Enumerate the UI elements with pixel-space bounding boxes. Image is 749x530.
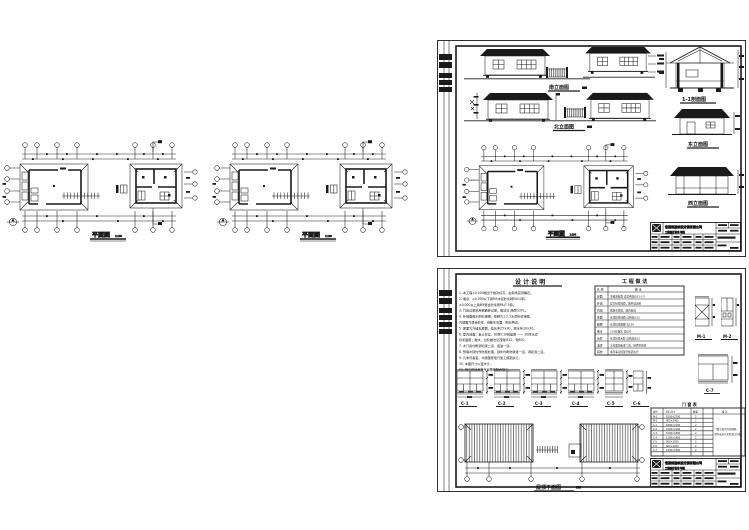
notes-title: 设 计 说 明 — [515, 278, 545, 286]
schedule-cell: 1000×2700 — [666, 415, 681, 418]
south-elevation-label: 南立面图 — [549, 84, 569, 91]
window-detail-c5 — [605, 370, 633, 397]
practice-col2: 做 法 — [635, 288, 642, 292]
sheet2-title-block — [651, 459, 741, 487]
sheet-elevations: 南立面图 北立面图 1-1剖面图 东立面图 — [438, 41, 746, 257]
roof-plan: 屋顶平面图 — [459, 424, 645, 491]
schedule-cell: C-5 — [653, 441, 658, 444]
note-line: 3. 门窗过梁采用钢筋砖过梁，做法见 西南G301。 — [459, 308, 528, 313]
schedule-header: 数量 — [693, 410, 698, 414]
practice-name: 台阶 — [597, 337, 603, 341]
sheet1-title-block — [651, 223, 741, 251]
section-label: 1-1剖面图 — [682, 96, 706, 103]
schedule-cell: M-1 — [653, 415, 658, 418]
window-detail-c6 — [633, 371, 651, 394]
binding-strip-blocks — [439, 54, 452, 92]
schedule-remark: 制作安装以实际洞口为准。 — [715, 432, 744, 436]
practice-title: 工 程 做 法 — [622, 278, 647, 285]
floor-plan-2 — [213, 140, 408, 241]
schedule-cell: 900×1500 — [666, 441, 679, 444]
practice-table: 工 程 做 法 名 称 做 法 屋面冷摊瓦屋面 详见西南J201-1-2 外墙混… — [595, 278, 684, 355]
note-line: 内墙面为混合砂浆，纸筋灰罩面，刷白两道。 — [459, 320, 521, 325]
c4-label: C-4 — [572, 401, 580, 406]
schedule-cell: 1200×1800 — [666, 436, 681, 439]
schedule-cell: C-7 — [653, 449, 658, 452]
north-elevation-label: 北立面图 — [554, 124, 574, 131]
practice-desc: 木材面调和漆二道，铁件防锈漆 — [610, 344, 647, 348]
schedule-cell: C-4 — [653, 436, 658, 439]
schedule-cell: C-2 — [653, 428, 658, 431]
practice-name: 内墙 — [597, 309, 603, 313]
south-elevation-left — [480, 49, 550, 78]
note-line: 6. 室内地面：素土夯实，80厚C10砼垫层 —— 20厚水泥 — [459, 331, 538, 336]
practice-name: 油漆 — [597, 344, 603, 348]
practice-desc: 未尽事宜按现行规范执行 — [610, 350, 639, 354]
west-elevation: 西立面图 — [668, 167, 744, 207]
schedule-remark: 门窗立面均为外视图， — [715, 427, 739, 431]
door-detail-m2 — [721, 298, 739, 326]
east-elevation: 东立面图 — [672, 109, 740, 148]
section-drawing: 1-1剖面图 — [659, 47, 744, 103]
schedule-header: 洞口尺寸 — [666, 410, 676, 414]
south-elevation-fence — [546, 67, 568, 78]
design-notes: 1. 本工程±0.000相当于绝对标高，由现场实测确定。 2. 墙身：±0.00… — [459, 290, 546, 372]
c2-label: C-2 — [498, 401, 506, 406]
schedule-cell: C-6 — [653, 445, 658, 448]
schedule-cell: 1500×2100 — [666, 428, 681, 431]
note-line: 砂浆面层；散水、台阶做法见西南J812，宽600。 — [459, 337, 527, 342]
note-line: 2. 墙身：±0.000以下用M5水泥砂浆砌MU10砖， — [459, 296, 528, 301]
plant-icon — [470, 100, 474, 110]
schedule-table: 门 窗 表 编号 洞口尺寸 数量 备 注 M-11000×27002 M-290… — [651, 401, 745, 456]
schedule-cell: C-1 — [653, 424, 658, 427]
practice-desc: 水泥砂浆台阶 详西南J812 — [610, 337, 640, 341]
schedule-cell: 600×1200 — [666, 445, 679, 448]
practice-name: 地面 — [597, 316, 603, 320]
practice-desc: C10砼散水 宽600 — [610, 330, 632, 334]
note-line: 8. 预埋木砖均作防腐处理，铁件均刷防锈漆一道，调和漆二道。 — [459, 349, 546, 354]
practice-desc: 水泥砂浆地面 详西南J312 — [610, 316, 640, 320]
cad-screenshot: 平面图 1:100 — [0, 0, 749, 530]
south-elevation-right — [585, 47, 651, 74]
east-elevation-label: 东立面图 — [688, 141, 708, 148]
practice-desc: 纸筋灰罩面，刷白两道 — [610, 309, 636, 313]
schedule-cell: C-3 — [653, 432, 658, 435]
schedule-title: 门 窗 表 — [682, 401, 697, 407]
practice-name: 散水 — [597, 330, 603, 334]
practice-name: 踢脚 — [597, 323, 603, 327]
north-elevation-right — [586, 93, 654, 121]
practice-name: 屋面 — [597, 295, 603, 299]
note-line: 4. 外墙面做水刷石墙裙，勒脚为1:2.5水泥砂浆抹面， — [459, 314, 533, 319]
cad-canvas: 平面图 1:100 — [0, 0, 749, 530]
note-line: 10. 本图尺寸以毫米计。 — [459, 361, 493, 366]
window-detail-c2 — [494, 370, 530, 398]
window-detail-c3 — [531, 370, 567, 398]
sheet-details: 设 计 说 明 1. 本工程±0.000相当于绝对标高，由现场实测确定。 2. … — [438, 269, 746, 492]
roof-fence — [536, 446, 558, 453]
c3-label: C-3 — [535, 401, 543, 406]
floor-plan-1 — [3, 140, 198, 241]
practice-desc: 水泥砂浆踢脚 高150 — [610, 323, 634, 327]
c7-label: C-7 — [706, 388, 714, 393]
schedule-header: 编号 — [653, 410, 658, 414]
m1-label: M-1 — [697, 334, 706, 339]
west-elevation-label: 西立面图 — [688, 200, 708, 207]
roof-plan-label: 屋顶平面图 — [536, 484, 561, 491]
north-elevation-fence — [564, 107, 586, 118]
practice-col1: 名 称 — [597, 288, 604, 292]
c5-label: C-5 — [607, 401, 615, 406]
c1-label: C-1 — [461, 401, 469, 406]
schedule-cell: 900×2400 — [666, 420, 679, 423]
practice-desc: 冷摊瓦屋面 详见西南J201-1-2 — [610, 295, 645, 299]
practice-name: 其他 — [597, 350, 603, 354]
note-line: 7. 木门窗均刷调和漆二道，底油一道。 — [459, 343, 512, 348]
sheet1-floor-plan — [462, 143, 647, 239]
schedule-cell: 1500×1500 — [666, 449, 681, 452]
note-line: 9. 凡未尽事宜，均按国家现行施工规范执行。 — [459, 355, 522, 360]
note-line: 1. 本工程±0.000相当于绝对标高，由现场实测确定。 — [459, 290, 533, 295]
window-detail-c4 — [568, 370, 604, 398]
practice-desc: 混合砂浆抹面，刷外墙涂料 — [610, 302, 642, 306]
c6-label: C-6 — [633, 401, 641, 406]
practice-name: 外墙 — [597, 302, 603, 306]
note-line: 5. 屋面为冷摊瓦屋面，挂瓦条25×30，顺水条30×30。 — [459, 325, 536, 330]
door-detail-m1 — [695, 297, 715, 326]
north-elevation-left — [483, 93, 553, 122]
schedule-cell: M-2 — [653, 420, 658, 423]
schedule-cell: 1800×2100 — [666, 424, 681, 427]
note-line: ±0.000以上用M5混合砂浆砌MU7.5砖。 — [459, 302, 516, 307]
m2-label: M-2 — [723, 334, 732, 339]
schedule-header: 备 注 — [722, 410, 728, 414]
window-detail-c7 — [698, 355, 738, 383]
binding-strip-blocks — [439, 290, 452, 334]
schedule-cell: 1500×1800 — [666, 432, 681, 435]
window-detail-c1 — [457, 370, 493, 398]
